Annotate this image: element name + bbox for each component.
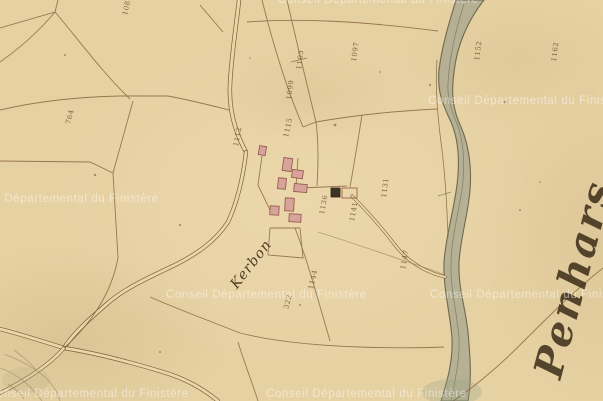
road-bottomleft-southeast bbox=[64, 348, 218, 401]
building bbox=[258, 146, 266, 156]
lane-village-to-river bbox=[352, 196, 445, 277]
paper-speckles bbox=[64, 54, 541, 353]
map-canvas[interactable]: Kerbon Penhars 1086 764 1103 1099 1097 1… bbox=[0, 0, 603, 401]
building-dark bbox=[331, 188, 340, 197]
building bbox=[291, 169, 303, 178]
village-buildings bbox=[258, 146, 357, 223]
building bbox=[282, 158, 293, 172]
bottomleft-sketch bbox=[0, 350, 60, 401]
building bbox=[277, 178, 286, 190]
building bbox=[285, 198, 295, 211]
building bbox=[289, 214, 301, 223]
building bbox=[270, 206, 279, 215]
river-mouth-wash bbox=[422, 379, 482, 401]
river-bank-tick bbox=[438, 192, 451, 196]
roads bbox=[0, 0, 445, 401]
building bbox=[294, 183, 308, 192]
road-bottomleft-west bbox=[0, 329, 64, 348]
